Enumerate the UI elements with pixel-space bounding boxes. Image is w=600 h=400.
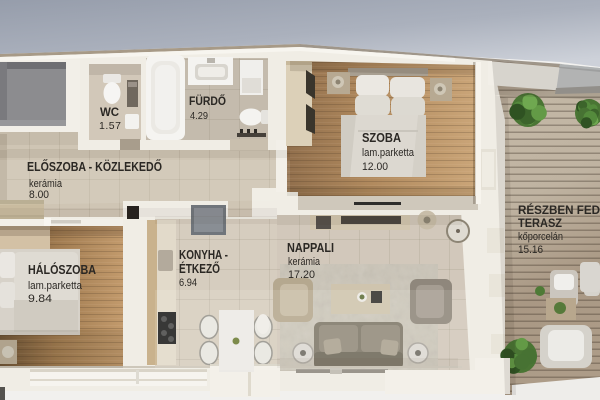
svg-text:lam.parketta: lam.parketta	[362, 147, 415, 159]
svg-text:TERASZ: TERASZ	[518, 216, 562, 230]
svg-text:12.00: 12.00	[362, 161, 388, 173]
svg-text:15.16: 15.16	[518, 244, 543, 256]
svg-text:ELŐSZOBA - KÖZLEKEDŐ: ELŐSZOBA - KÖZLEKEDŐ	[27, 159, 162, 174]
svg-text:NAPPALI: NAPPALI	[287, 241, 334, 255]
svg-text:ÉTKEZŐ: ÉTKEZŐ	[179, 261, 220, 276]
svg-text:lam.parketta: lam.parketta	[28, 280, 83, 292]
svg-text:KONYHA -: KONYHA -	[179, 248, 228, 262]
svg-text:WC: WC	[100, 107, 119, 119]
svg-text:FÜRDŐ: FÜRDŐ	[189, 95, 226, 108]
svg-text:8.00: 8.00	[29, 189, 49, 201]
svg-text:17.20: 17.20	[288, 269, 315, 281]
svg-text:1.57: 1.57	[99, 120, 121, 132]
svg-text:9.84: 9.84	[28, 293, 52, 305]
svg-text:6.94: 6.94	[179, 277, 197, 289]
svg-text:4.29: 4.29	[190, 110, 208, 122]
svg-text:kőporcelán: kőporcelán	[518, 231, 563, 243]
svg-text:HÁLÓSZOBA: HÁLÓSZOBA	[28, 262, 96, 277]
svg-text:RÉSZBEN FEDETT: RÉSZBEN FEDETT	[518, 202, 600, 217]
svg-text:kerámia: kerámia	[288, 256, 321, 268]
svg-text:SZOBA: SZOBA	[362, 131, 401, 145]
